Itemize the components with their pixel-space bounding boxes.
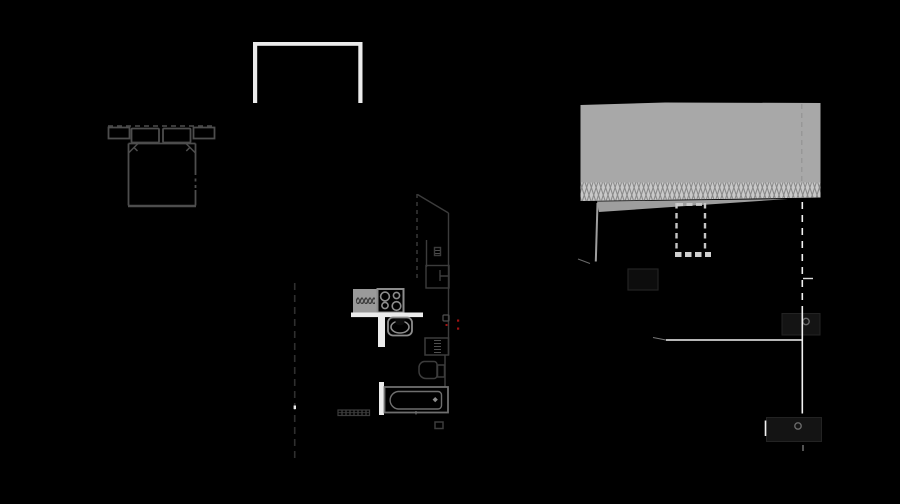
bed-frame <box>128 144 196 207</box>
kitchen-wall-horizontal <box>351 313 423 318</box>
balcony-wall-left <box>253 42 257 103</box>
cooktop <box>378 289 404 313</box>
balcony-wall-right <box>358 42 362 103</box>
electrical-marks <box>443 315 459 330</box>
toilet-tank <box>438 365 445 377</box>
level-line-tip <box>653 338 666 341</box>
kitchen <box>351 289 423 347</box>
base-tick <box>578 259 590 264</box>
section-cut <box>294 283 296 462</box>
dashed-duct <box>675 203 711 255</box>
toilet <box>419 355 445 387</box>
roof-slab <box>581 103 821 183</box>
floor-drain-square <box>435 422 443 429</box>
door-lower <box>766 418 822 442</box>
fridge <box>426 266 449 289</box>
toilet-bowl <box>419 362 437 379</box>
section-cut-marker <box>294 406 296 410</box>
wardrobe <box>417 194 449 355</box>
blanket-fold-right <box>186 144 196 154</box>
red-outlet-dot-2 <box>457 320 459 322</box>
door-panel-lower <box>767 418 822 442</box>
roof-section <box>578 103 822 452</box>
balcony-outline <box>253 42 363 103</box>
double-bed <box>108 126 215 206</box>
bathtub <box>385 387 449 415</box>
kitchen-sink <box>388 318 412 336</box>
drawing-layer <box>0 0 900 504</box>
wardrobe-hatch-block <box>435 248 441 256</box>
wall-stud-wedge <box>596 203 598 262</box>
red-outlet-dot-3 <box>457 328 459 330</box>
blanket-fold-left <box>129 144 139 154</box>
nightstand-right <box>194 128 215 139</box>
washing-machine-hatch <box>434 340 441 354</box>
architectural-drawing-canvas <box>0 0 900 504</box>
pillow-right <box>163 129 191 143</box>
fridge-handle <box>440 270 449 281</box>
door-panel-upper <box>782 314 820 336</box>
washing-machine <box>425 338 449 355</box>
sink-faucet <box>395 319 405 325</box>
nightstand-left <box>109 128 130 139</box>
kitchen-wall-vertical <box>378 317 385 347</box>
red-outlet-dot-1 <box>446 324 448 326</box>
bathroom <box>338 338 449 429</box>
insulation-hatch <box>581 183 821 202</box>
dark-opening <box>628 269 658 290</box>
bathtub-drain <box>433 397 438 402</box>
radiator <box>338 410 370 416</box>
bathroom-wall <box>379 382 384 415</box>
door-upper <box>782 314 820 336</box>
pillow-left <box>132 129 160 143</box>
wardrobe-sloped-edge <box>418 195 449 214</box>
kitchen-counter-hatch <box>356 298 375 305</box>
balcony-wall-top <box>253 42 363 46</box>
